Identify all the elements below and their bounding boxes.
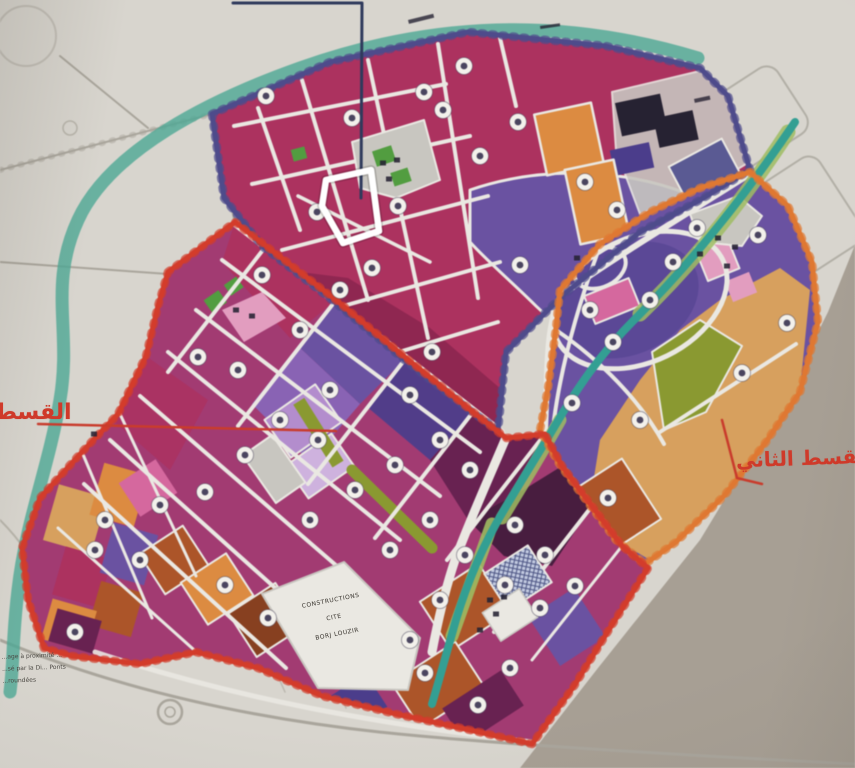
- map-shape: [502, 582, 509, 589]
- map-shape: [307, 517, 314, 524]
- map-shape: [422, 670, 429, 677]
- map-shape: [587, 307, 594, 314]
- map-shape: [92, 547, 99, 554]
- map-shape: [437, 437, 444, 444]
- parcel-icon: [732, 245, 738, 250]
- parcel-marker: [237, 447, 254, 464]
- map-shape: [637, 417, 644, 424]
- parcel-marker: [502, 660, 519, 677]
- map-shape: [670, 259, 677, 266]
- parcel-marker: [632, 412, 649, 429]
- parcel-marker: [470, 697, 487, 714]
- parcel-marker: [382, 542, 399, 559]
- parcel-marker: [424, 344, 441, 361]
- map-shape: [582, 179, 589, 186]
- parcel-marker: [344, 110, 361, 127]
- map-shape: [605, 495, 612, 502]
- parcel-icon: [493, 612, 499, 617]
- parcel-marker: [605, 334, 622, 351]
- map-shape: [515, 119, 522, 126]
- map-shape: [407, 392, 414, 399]
- parcel-icon: [386, 177, 392, 182]
- map-shape: [739, 370, 746, 377]
- parcel-icon: [477, 628, 483, 633]
- map-shape: [437, 597, 444, 604]
- parcel-marker: [402, 632, 419, 649]
- map-shape: [647, 297, 654, 304]
- parcel-marker: [387, 457, 404, 474]
- map-shape: [517, 262, 524, 269]
- parcel-marker: [456, 58, 473, 75]
- map-shape: [421, 89, 428, 96]
- map-shape: [395, 203, 402, 210]
- map-shape: [392, 462, 399, 469]
- map-shape: [440, 107, 447, 114]
- map-shape: [315, 437, 322, 444]
- parcel-marker: [537, 547, 554, 564]
- map-shape: [72, 629, 79, 636]
- parcel-marker: [190, 349, 207, 366]
- map-shape: [784, 320, 791, 327]
- parcel-icon: [233, 308, 239, 313]
- parcel-marker: [364, 260, 381, 277]
- parcel-marker: [609, 202, 626, 219]
- parcel-marker: [779, 315, 796, 332]
- parcel-marker: [507, 517, 524, 534]
- parcel-marker: [272, 412, 289, 429]
- parcel-marker: [310, 432, 327, 449]
- parcel-marker: [567, 578, 584, 595]
- parcel-marker: [512, 257, 529, 274]
- parcel-marker: [390, 198, 407, 215]
- parcel-marker: [642, 292, 659, 309]
- parcel-marker: [577, 174, 594, 191]
- parcel-marker: [132, 552, 149, 569]
- map-shape: [475, 702, 482, 709]
- parcel-marker: [332, 282, 349, 299]
- zoning-plan-photo: القسط القسط الثاني CONSTRUCTIONS CITE BO…: [0, 0, 855, 768]
- parcel-marker: [532, 600, 549, 617]
- map-shape: [369, 265, 376, 272]
- parcel-marker: [260, 610, 277, 627]
- map-shape: [352, 487, 359, 494]
- map-shape: [349, 115, 356, 122]
- parcel-icon: [715, 236, 721, 241]
- parcel-marker: [600, 490, 617, 507]
- roundabout: [158, 700, 182, 724]
- map-shape: [507, 665, 514, 672]
- map-shape: [337, 287, 344, 294]
- parcel-marker: [230, 362, 247, 379]
- parcel-marker: [302, 512, 319, 529]
- parcel-marker: [432, 592, 449, 609]
- map-shape: [387, 547, 394, 554]
- map-shape: [614, 207, 621, 214]
- parcel-marker: [258, 88, 275, 105]
- parcel-marker: [497, 577, 514, 594]
- parcel-icon: [394, 158, 400, 163]
- map-shape: [694, 225, 701, 232]
- map-shape: [102, 517, 109, 524]
- parcel-icon: [380, 161, 386, 166]
- map-shape: [327, 387, 334, 394]
- parcel-marker: [217, 577, 234, 594]
- parcel-icon: [501, 595, 507, 600]
- parcel-marker: [402, 387, 419, 404]
- map-shape: [429, 349, 436, 356]
- map-shape: [297, 327, 304, 334]
- map-shape: [477, 153, 484, 160]
- parcel-marker: [734, 365, 751, 382]
- parcel-marker: [292, 322, 309, 339]
- map-shape: [461, 63, 468, 70]
- parcel-marker: [417, 665, 434, 682]
- parcel-marker: [322, 382, 339, 399]
- map-shape: [572, 583, 579, 590]
- parcel-marker: [422, 512, 439, 529]
- map-shape: [137, 557, 144, 564]
- parcel-marker: [416, 84, 433, 101]
- parcel-marker: [432, 432, 449, 449]
- parcel-icon: [487, 598, 493, 603]
- map-shape: [222, 582, 229, 589]
- parcel-marker: [435, 102, 452, 119]
- map-shape: [512, 522, 519, 529]
- map-shape: [755, 232, 762, 239]
- map-shape: [537, 605, 544, 612]
- parcel-icon: [91, 432, 97, 437]
- parcel-marker: [564, 395, 581, 412]
- parcel-marker: [254, 267, 271, 284]
- parcel-marker: [67, 624, 84, 641]
- parcel-marker: [665, 254, 682, 271]
- map-shape: [195, 354, 202, 361]
- parcel-icon: [249, 314, 255, 319]
- map-shape: [259, 272, 266, 279]
- parcel-marker: [347, 482, 364, 499]
- zoning-map-svg: [0, 0, 855, 768]
- map-shape: [157, 502, 164, 509]
- parcel-icon: [724, 264, 730, 269]
- parcel-marker: [750, 227, 767, 244]
- parcel-marker: [97, 512, 114, 529]
- parcel-marker: [582, 302, 599, 319]
- map-shape: [235, 367, 242, 374]
- parcel-marker: [510, 114, 527, 131]
- parcel-marker: [197, 484, 214, 501]
- map-shape: [610, 339, 617, 346]
- map-shape: [407, 637, 414, 644]
- map-shape: [569, 400, 576, 407]
- parcel-marker: [152, 497, 169, 514]
- parcel-marker: [457, 547, 474, 564]
- map-shape: [542, 552, 549, 559]
- map-shape: [462, 552, 469, 559]
- parcel-marker: [462, 462, 479, 479]
- map-shape: [467, 467, 474, 474]
- parcel-marker: [689, 220, 706, 237]
- parcel-marker: [472, 148, 489, 165]
- map-shape: [277, 417, 284, 424]
- map-shape: [427, 517, 434, 524]
- parcel-marker: [87, 542, 104, 559]
- parcel-icon: [697, 252, 703, 257]
- parcel-icon: [574, 256, 580, 261]
- map-shape: [265, 615, 272, 622]
- map-shape: [202, 489, 209, 496]
- map-shape: [242, 452, 249, 459]
- map-shape: [263, 93, 270, 100]
